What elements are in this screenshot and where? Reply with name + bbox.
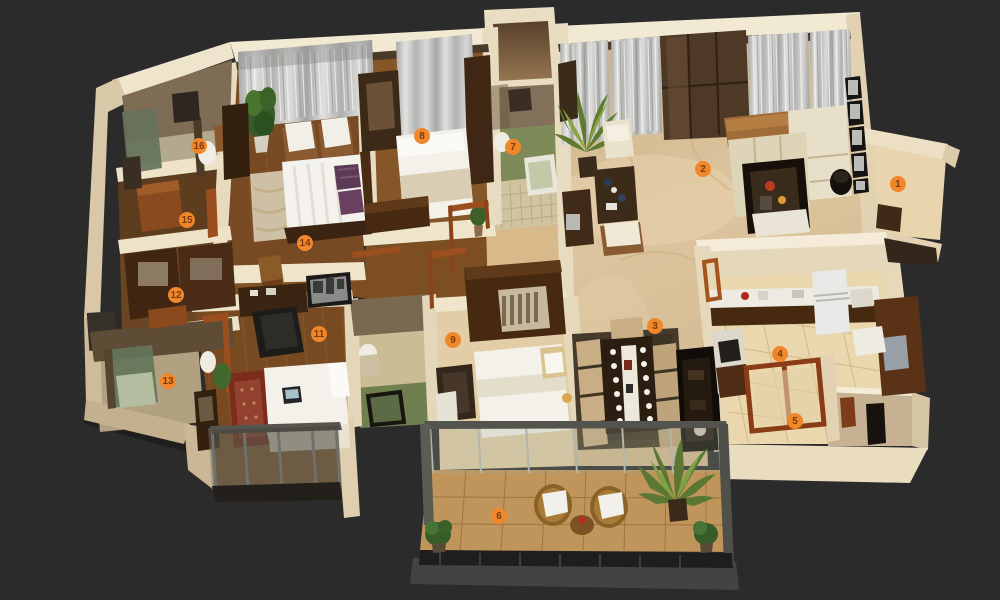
svg-text:16: 16 (193, 141, 205, 152)
svg-text:8: 8 (419, 131, 425, 142)
svg-text:12: 12 (170, 290, 182, 301)
svg-text:2: 2 (700, 164, 706, 175)
svg-text:11: 11 (314, 329, 325, 340)
svg-text:14: 14 (299, 238, 311, 249)
svg-text:1: 1 (895, 179, 901, 190)
svg-text:3: 3 (652, 321, 658, 332)
svg-text:9: 9 (450, 335, 456, 346)
svg-text:6: 6 (496, 511, 502, 522)
svg-text:15: 15 (181, 215, 193, 226)
svg-text:4: 4 (777, 349, 783, 360)
svg-text:13: 13 (162, 376, 174, 387)
svg-text:5: 5 (792, 416, 798, 427)
svg-text:7: 7 (510, 142, 516, 153)
